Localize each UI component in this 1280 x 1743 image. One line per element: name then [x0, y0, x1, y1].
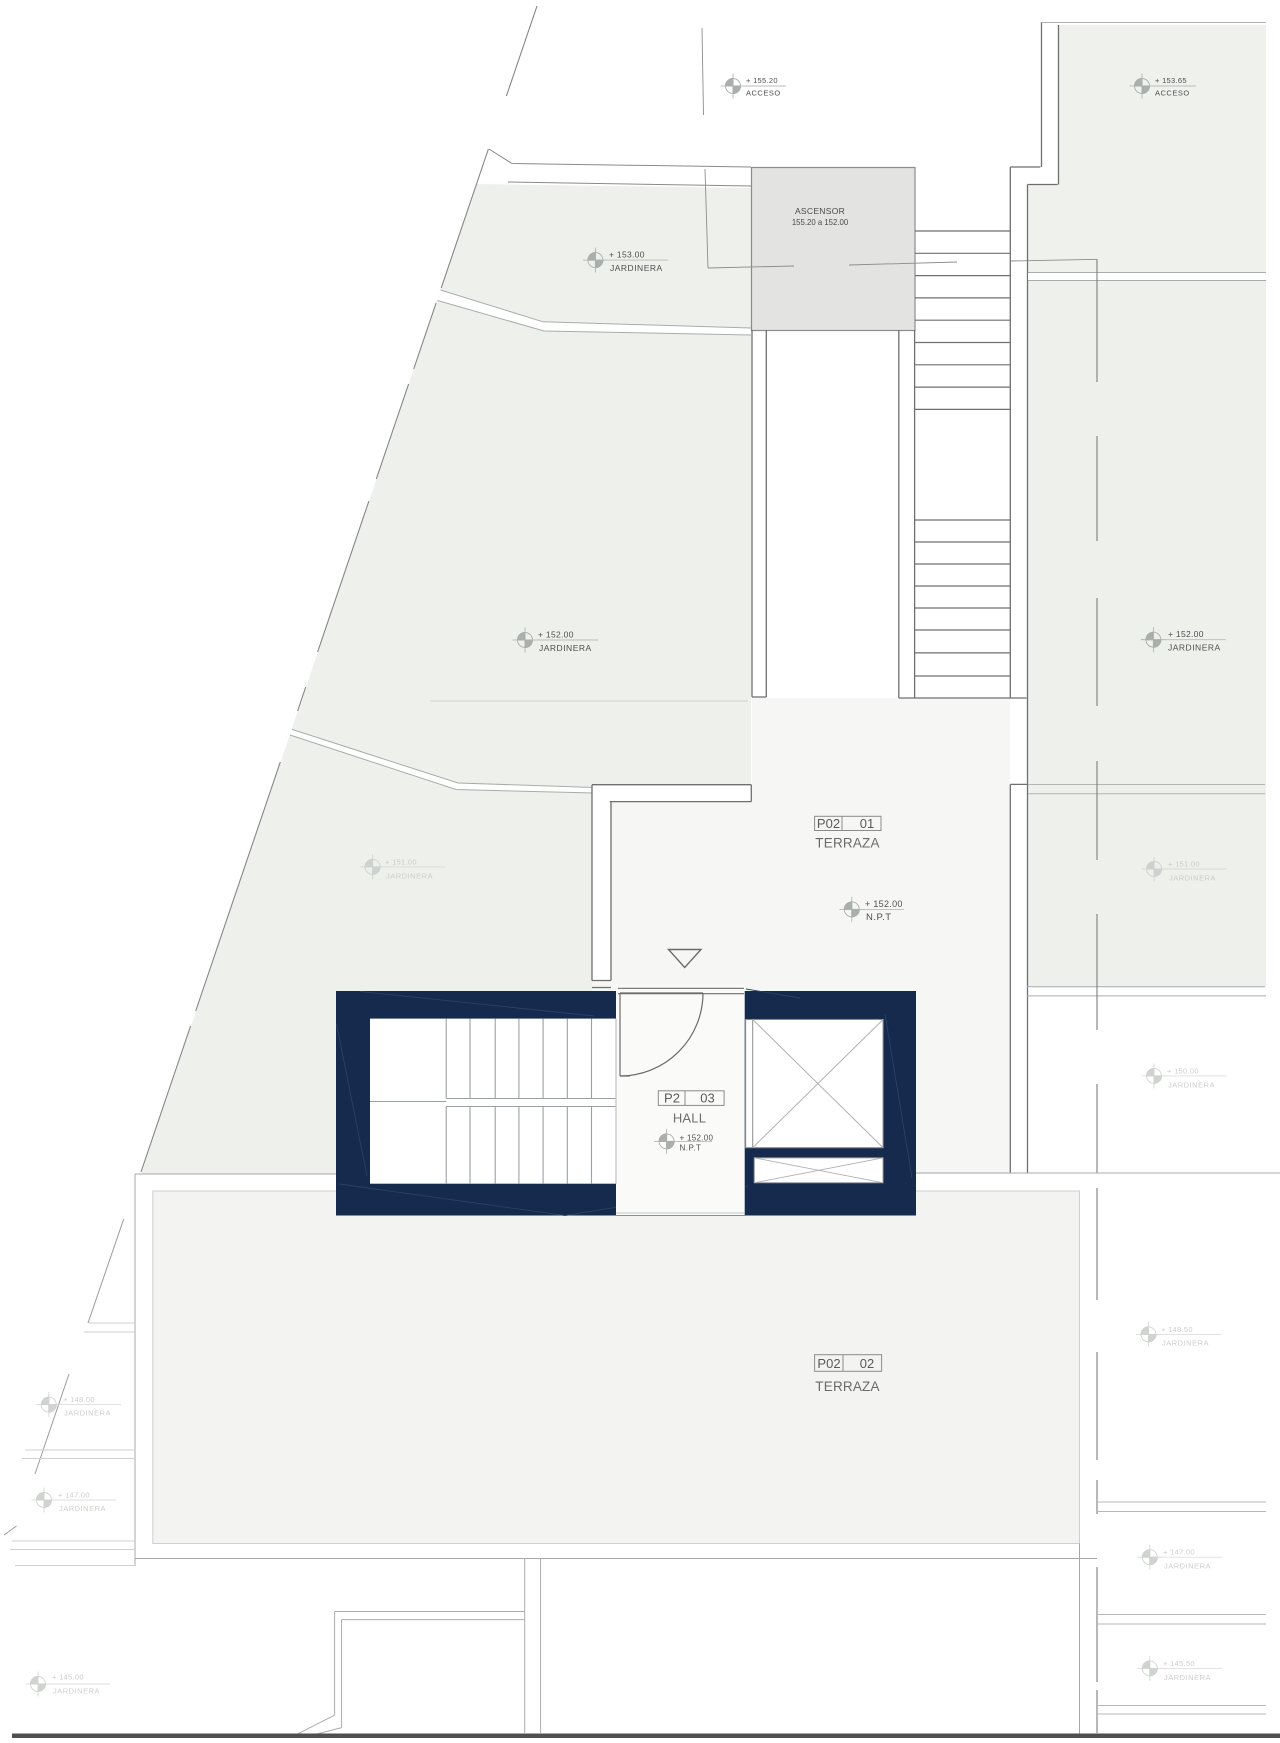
- svg-text:ACCESO: ACCESO: [746, 89, 781, 98]
- svg-text:03: 03: [700, 1091, 714, 1106]
- svg-text:02: 02: [860, 1356, 874, 1371]
- svg-text:JARDINERA: JARDINERA: [64, 1409, 111, 1418]
- svg-text:JARDINERA: JARDINERA: [53, 1687, 100, 1696]
- svg-text:JARDINERA: JARDINERA: [1164, 1562, 1211, 1571]
- svg-text:+ 152.00: + 152.00: [538, 630, 574, 640]
- svg-text:JARDINERA: JARDINERA: [59, 1504, 106, 1513]
- svg-text:01: 01: [860, 816, 874, 831]
- svg-text:JARDINERA: JARDINERA: [1169, 874, 1216, 883]
- svg-text:+ 152.00: + 152.00: [680, 1134, 714, 1143]
- svg-text:+ 147.00: + 147.00: [1163, 1548, 1195, 1557]
- svg-text:+ 152.00: + 152.00: [865, 899, 903, 909]
- svg-text:JARDINERA: JARDINERA: [1168, 1081, 1215, 1090]
- svg-text:TERRAZA: TERRAZA: [815, 1379, 879, 1394]
- svg-text:N.P.T: N.P.T: [866, 912, 892, 923]
- svg-text:+ 153.65: + 153.65: [1155, 76, 1187, 85]
- svg-text:HALL: HALL: [673, 1110, 706, 1125]
- svg-text:+ 145.50: + 145.50: [1163, 1659, 1195, 1668]
- svg-text:+ 155.20: + 155.20: [746, 76, 778, 85]
- svg-text:155.20 a 152.00: 155.20 a 152.00: [792, 218, 849, 227]
- svg-text:+ 150.00: + 150.00: [1167, 1067, 1199, 1076]
- svg-text:+ 147.00: + 147.00: [58, 1491, 90, 1500]
- svg-text:+ 148.50: + 148.50: [1161, 1325, 1193, 1334]
- svg-text:+ 151.00: + 151.00: [1168, 860, 1200, 869]
- svg-text:+ 148.00: + 148.00: [63, 1395, 95, 1404]
- svg-text:ACCESO: ACCESO: [1155, 89, 1190, 98]
- svg-text:+ 152.00: + 152.00: [1168, 629, 1204, 639]
- svg-text:+ 151.00: + 151.00: [385, 858, 417, 867]
- svg-text:JARDINERA: JARDINERA: [386, 872, 433, 881]
- svg-text:JARDINERA: JARDINERA: [1162, 1339, 1209, 1348]
- svg-text:P2: P2: [664, 1091, 680, 1106]
- svg-text:ASCENSOR: ASCENSOR: [795, 206, 845, 216]
- svg-text:P02: P02: [817, 816, 840, 831]
- svg-text:TERRAZA: TERRAZA: [815, 836, 879, 851]
- svg-text:+ 153.00: + 153.00: [609, 250, 645, 260]
- svg-text:N.P.T: N.P.T: [680, 1144, 702, 1153]
- svg-text:P02: P02: [817, 1356, 840, 1371]
- svg-text:JARDINERA: JARDINERA: [1168, 643, 1221, 653]
- svg-text:JARDINERA: JARDINERA: [539, 643, 592, 653]
- svg-text:JARDINERA: JARDINERA: [610, 263, 663, 273]
- svg-text:+ 145.00: + 145.00: [52, 1673, 84, 1682]
- svg-text:JARDINERA: JARDINERA: [1164, 1673, 1211, 1682]
